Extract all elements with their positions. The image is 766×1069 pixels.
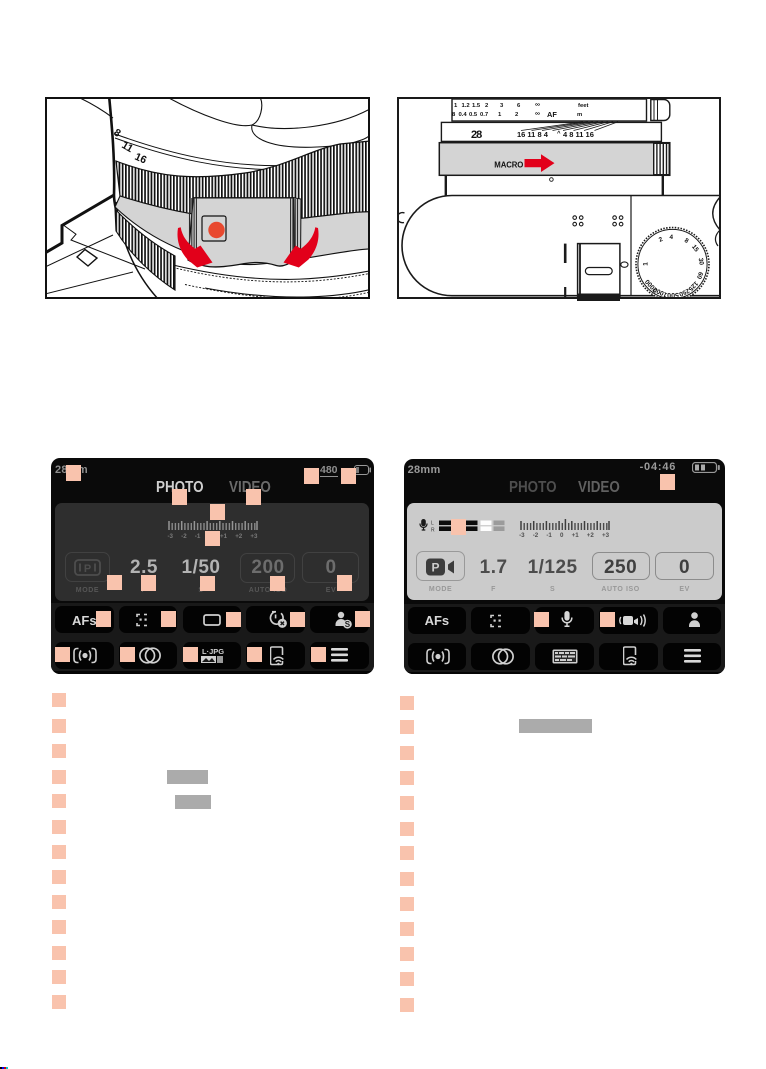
- svg-text:m: m: [577, 112, 582, 118]
- svg-text:∞: ∞: [535, 111, 540, 118]
- svg-text:feet: feet: [578, 103, 589, 109]
- svg-text:16 11 8 4: 16 11 8 4: [517, 130, 549, 139]
- svg-text:MACRO: MACRO: [494, 161, 523, 170]
- svg-text:1.5: 1.5: [472, 103, 481, 109]
- svg-text:0.4: 0.4: [459, 112, 468, 118]
- svg-text:L: L: [431, 520, 434, 526]
- svg-text:L·JPG: L·JPG: [202, 647, 224, 656]
- svg-text:16: 16: [133, 151, 149, 167]
- svg-text:∞: ∞: [535, 102, 540, 109]
- svg-text:1: 1: [643, 262, 650, 266]
- svg-text:0.5: 0.5: [469, 112, 478, 118]
- svg-text:^: ^: [557, 131, 561, 137]
- svg-text:AF: AF: [547, 110, 557, 119]
- svg-text:4 8 11 16: 4 8 11 16: [563, 130, 594, 139]
- svg-text:S: S: [345, 620, 351, 629]
- svg-text:11: 11: [120, 139, 136, 155]
- svg-text:28: 28: [471, 129, 482, 141]
- svg-text:0.7: 0.7: [480, 112, 489, 118]
- svg-text:P: P: [431, 560, 439, 574]
- svg-text:1.2: 1.2: [462, 103, 471, 109]
- svg-text:P: P: [84, 563, 91, 575]
- svg-text:R: R: [431, 527, 435, 533]
